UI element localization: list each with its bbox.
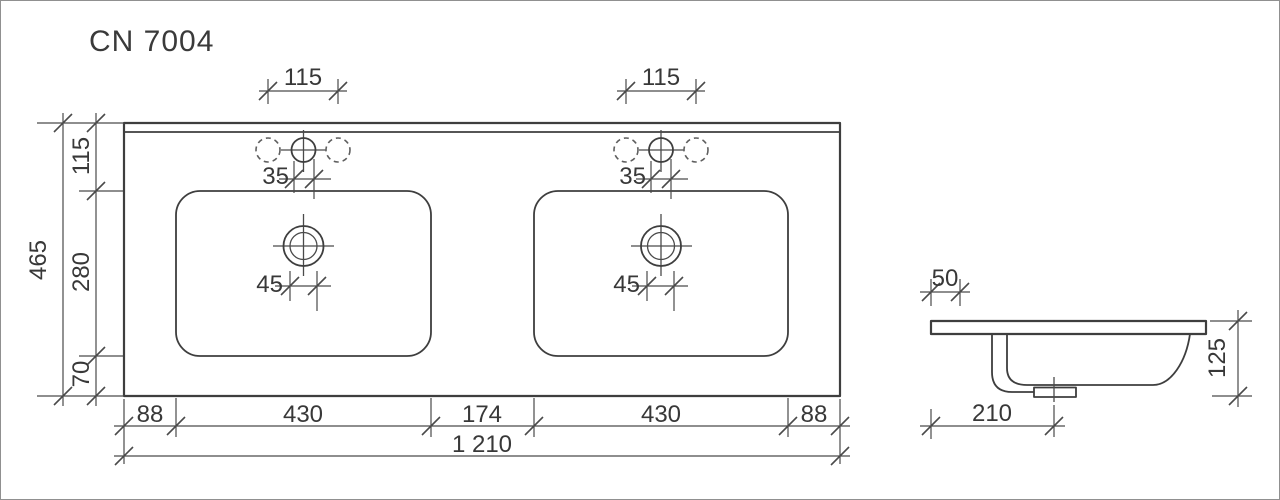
dim-depth-total: 465 [25,240,52,280]
dim-faucet-pitch-left: 115 [284,64,322,91]
countertop-outline [124,123,840,396]
top-view [124,123,840,396]
faucet-hole-option-left-a-icon [256,138,280,162]
dim-width-seg-2: 430 [283,401,323,428]
dim-depth-seg-mid: 280 [68,252,95,292]
dim-width-seg-3: 174 [462,401,502,428]
dim-side-height: 125 [1204,338,1231,378]
dim-width-total: 1 210 [452,431,512,458]
drain-left [273,214,334,276]
drain-right [631,214,692,276]
dim-width-seg-4: 430 [641,401,681,428]
dim-faucet-offset-right: 35 [619,163,646,190]
dim-faucet-pitch-right: 115 [642,64,680,91]
dim-depth-seg-top: 115 [68,137,95,175]
dim-side-offset: 50 [932,265,959,292]
dim-width-seg-5: 88 [801,401,828,428]
dim-side-drain: 210 [972,400,1012,427]
side-bowl-inner-wall [1007,334,1190,385]
dim-width-seg-1: 88 [137,401,164,428]
side-drain-fitting [1034,388,1076,398]
dim-drain-dia-right: 45 [613,271,640,298]
drawing-title: CN 7004 [89,25,214,58]
dim-drain-dia-left: 45 [256,271,283,298]
side-countertop [931,321,1206,334]
side-view-dimensions [920,279,1252,439]
dim-faucet-offset-left: 35 [262,163,289,190]
drawing-sheet: CN 7004 [0,0,1280,500]
faucet-hole-option-left-b-icon [326,138,350,162]
dim-depth-seg-bottom: 70 [68,361,95,388]
side-bowl-outer-wall [992,334,1034,392]
faucet-hole-option-right-a-icon [614,138,638,162]
side-view [931,321,1206,402]
faucet-hole-option-right-b-icon [684,138,708,162]
technical-drawing: CN 7004 [1,1,1279,499]
